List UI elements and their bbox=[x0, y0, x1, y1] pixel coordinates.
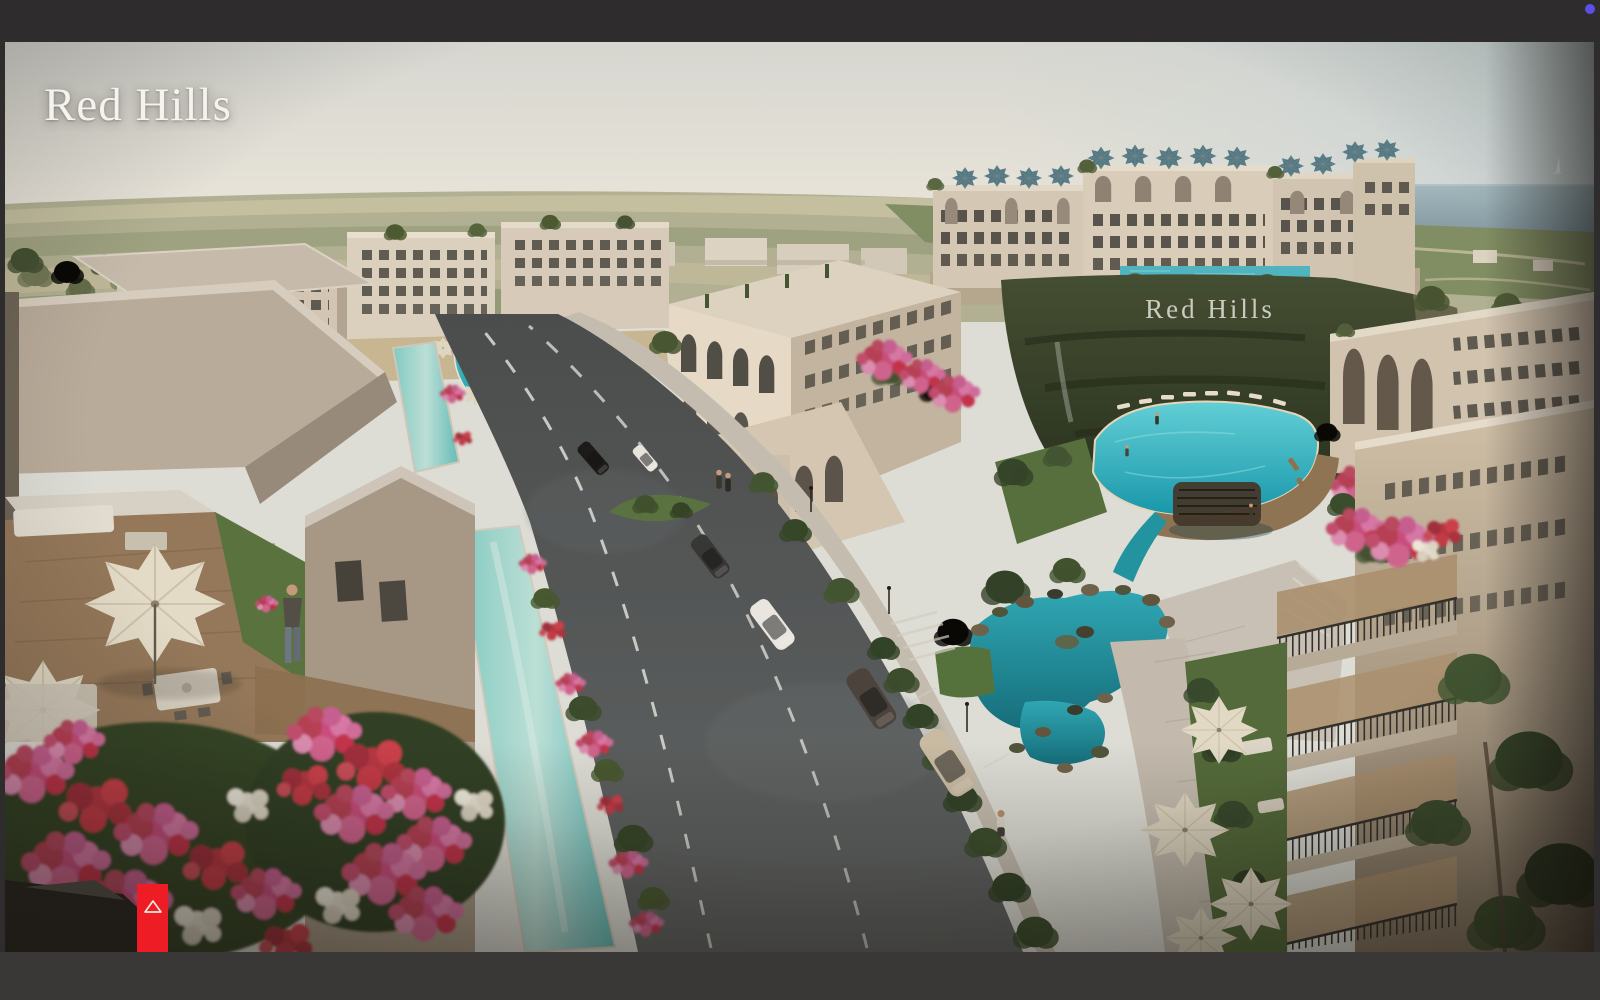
triangle-up-icon bbox=[143, 899, 163, 914]
lighting-overlays bbox=[5, 42, 1594, 952]
scroll-top-button[interactable] bbox=[137, 884, 168, 952]
recording-indicator-dot bbox=[1585, 4, 1595, 14]
brand-logo: Red Hills bbox=[44, 80, 232, 131]
bottom-bar bbox=[0, 952, 1600, 1000]
render-image: Red Hills bbox=[5, 42, 1594, 952]
app-window: { "window": { "frame_color": "#2e2c2c", … bbox=[0, 0, 1600, 1000]
